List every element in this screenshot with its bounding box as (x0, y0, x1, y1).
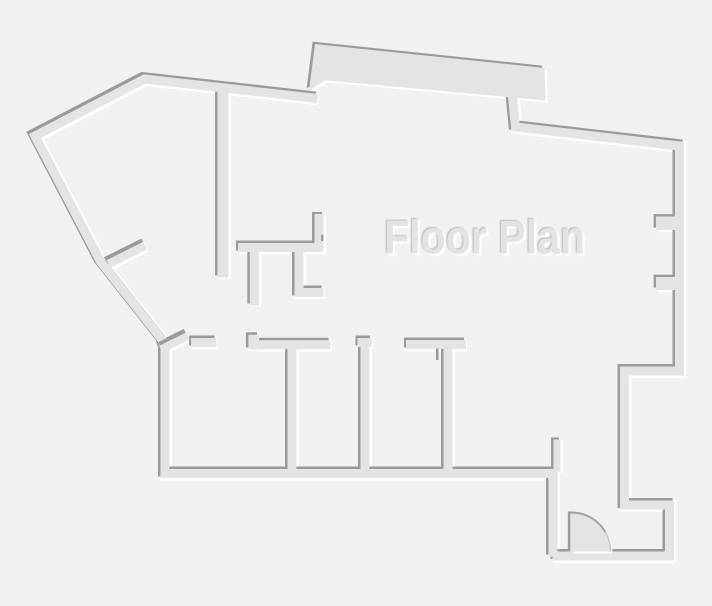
svg-text:Floor Plan: Floor Plan (384, 210, 585, 263)
